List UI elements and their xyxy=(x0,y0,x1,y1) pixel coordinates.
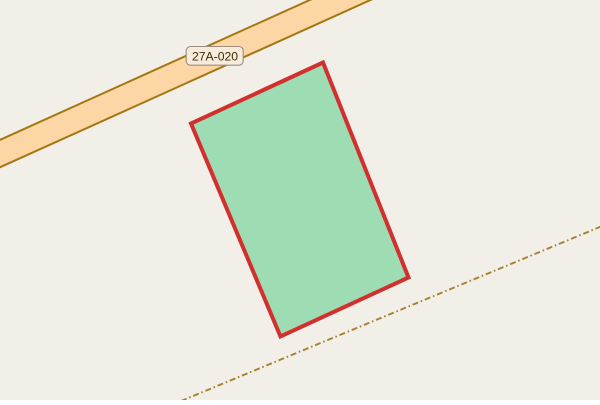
svg-text:27A-020: 27A-020 xyxy=(192,50,238,64)
